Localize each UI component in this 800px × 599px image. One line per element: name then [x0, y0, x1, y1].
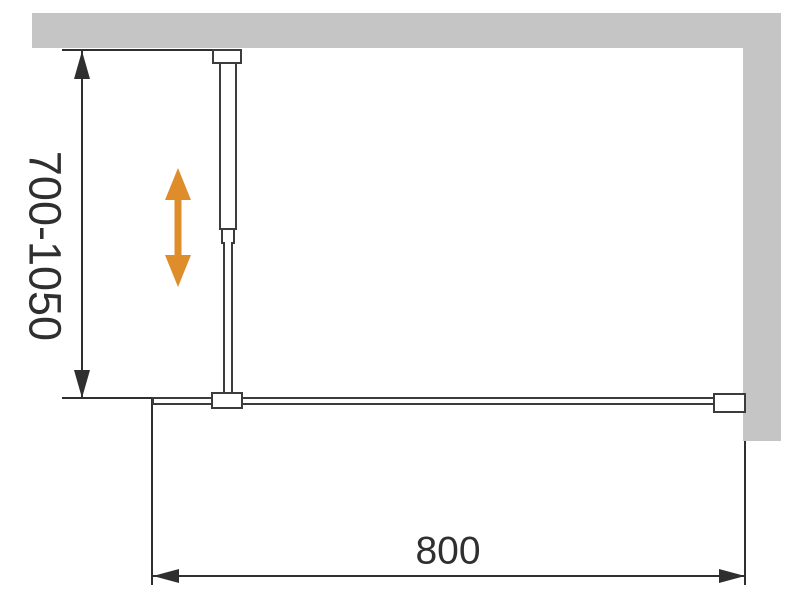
width-dim-extension-left	[151, 399, 153, 585]
wall-top	[32, 13, 781, 48]
wall-right	[743, 13, 781, 441]
support-bar-outer-tube	[219, 62, 237, 230]
diagram-canvas: 700-1050 800	[0, 0, 800, 599]
width-dimension-label: 800	[415, 532, 480, 571]
height-dimension-label: 700-1050	[23, 151, 68, 341]
height-adjust-arrow-icon	[160, 164, 196, 292]
height-dim-line	[81, 51, 83, 398]
height-dim-arrow-down-icon	[74, 370, 90, 398]
width-dim-arrow-left-icon	[153, 569, 179, 583]
width-dim-arrow-right-icon	[719, 569, 745, 583]
wall-profile-bracket	[713, 393, 746, 413]
width-dim-line	[153, 575, 745, 577]
support-bar-inner-tube	[223, 242, 233, 394]
height-dim-arrow-up-icon	[74, 51, 90, 79]
glass-clamp-bracket	[211, 392, 243, 409]
